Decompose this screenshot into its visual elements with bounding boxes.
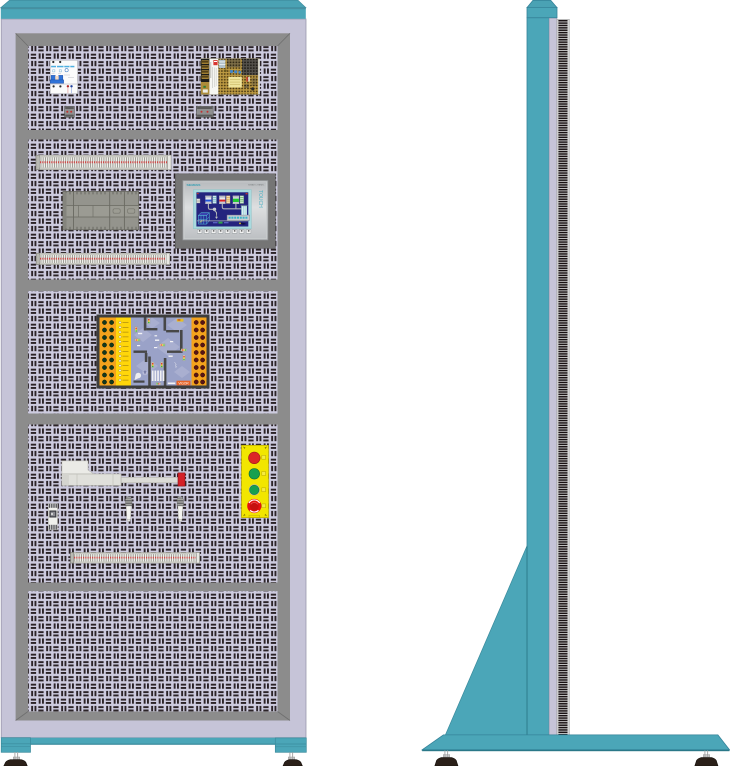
svg-text:SIEMENS: SIEMENS [187,183,201,187]
svg-text:SIMATIC PANEL: SIMATIC PANEL [248,183,265,186]
svg-text:TOUCH: TOUCH [257,190,263,208]
svg-text:VIGOR: VIGOR [178,381,189,385]
